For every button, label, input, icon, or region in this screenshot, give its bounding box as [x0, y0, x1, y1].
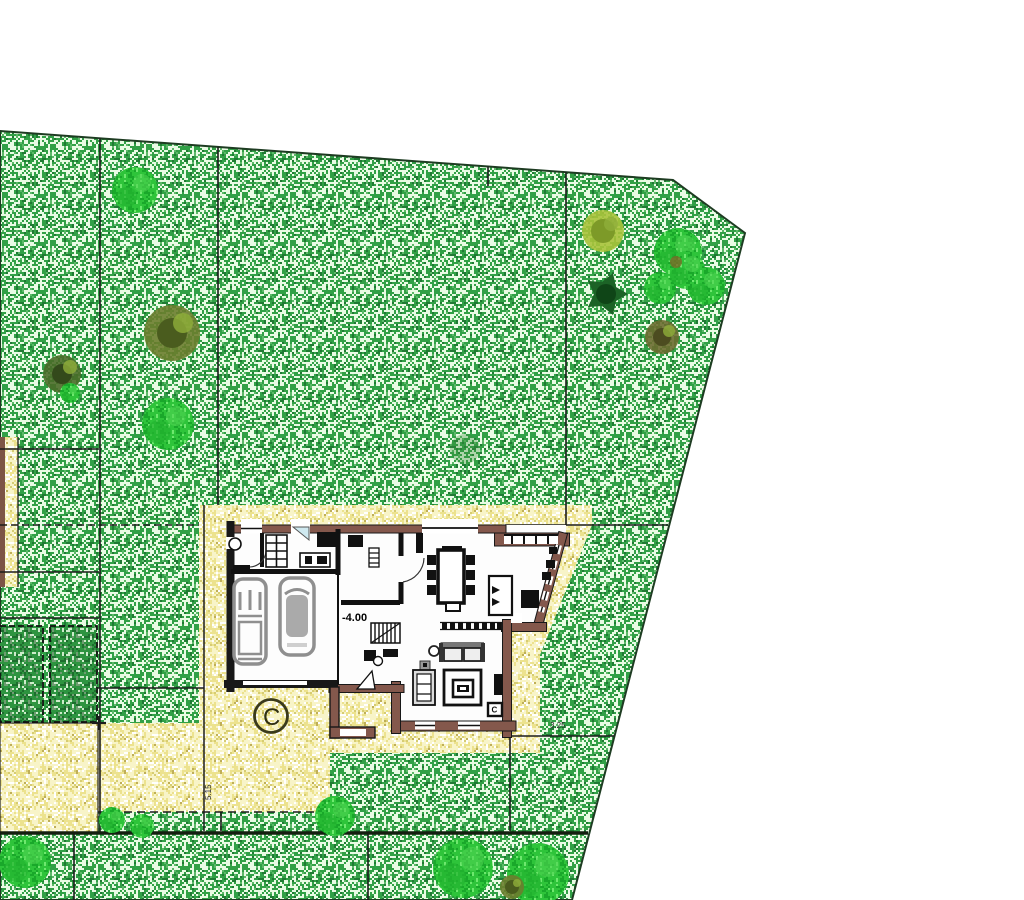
svg-text:-4.00: -4.00: [342, 612, 367, 624]
svg-text:C: C: [492, 706, 498, 715]
svg-text:3.25: 3.25: [550, 721, 566, 730]
svg-text:5.15: 5.15: [204, 784, 213, 800]
svg-text:C: C: [263, 704, 280, 731]
